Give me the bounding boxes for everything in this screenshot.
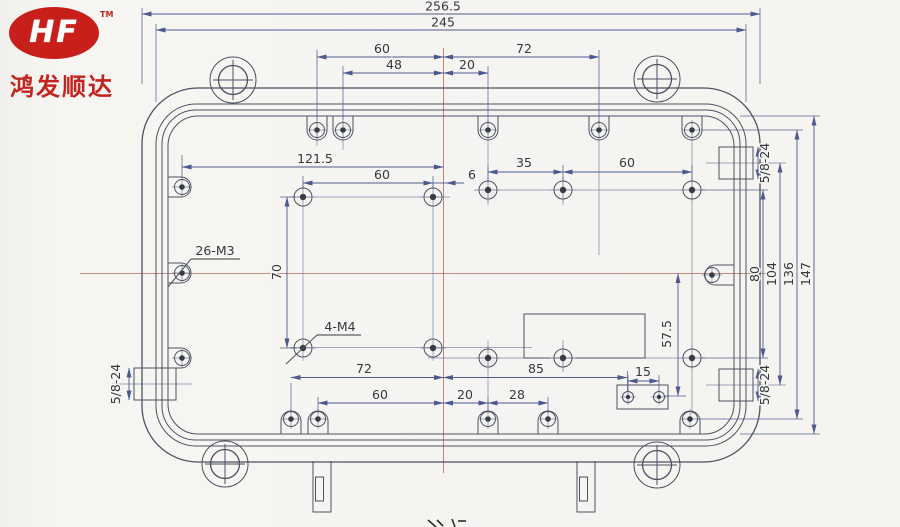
extension-lines	[142, 8, 820, 434]
label-4-m4: 4-M4	[324, 319, 355, 334]
dim-mid-6: 6	[468, 167, 476, 182]
dim-bottom-28: 28	[509, 387, 525, 402]
dim-right-80: 80	[747, 266, 762, 282]
label-26-m3: 26-M3	[195, 243, 234, 258]
boss-screw	[679, 345, 705, 371]
dim-top-right-72: 72	[516, 41, 532, 56]
dim-mid-57-5: 57.5	[659, 320, 674, 348]
label-thread-top-right: 5/8-24	[757, 143, 772, 184]
corner-mount-hole-bottom-left	[205, 444, 245, 484]
dim-left-height-70: 70	[269, 264, 284, 280]
tab-screw	[172, 348, 192, 368]
dim-bottom-72: 72	[356, 361, 372, 376]
label-thread-bottom-right: 5/8-24	[757, 365, 772, 406]
dim-right-104: 104	[764, 262, 779, 286]
callout-leaders	[168, 259, 361, 364]
dim-top-left-60: 60	[374, 41, 390, 56]
dim-mid-60: 60	[374, 167, 390, 182]
corner-mount-hole-top-left	[213, 60, 253, 100]
enclosure-outline	[142, 56, 760, 512]
dim-right-136: 136	[781, 262, 796, 286]
dim-upper-right-60: 60	[619, 155, 635, 170]
foot-notch-right	[580, 477, 588, 501]
terminal-screw	[651, 389, 667, 405]
dim-bottom-20: 20	[457, 387, 473, 402]
corner-mount-hole-top-right	[637, 59, 677, 99]
dim-top-48: 48	[386, 57, 402, 72]
dim-overall-width: 256.5	[425, 0, 461, 14]
tab-screw	[172, 177, 192, 197]
dim-inner-width: 245	[431, 15, 455, 30]
dim-bottom-60: 60	[372, 387, 388, 402]
dimension-lines	[129, 14, 814, 434]
boss-screw	[420, 335, 446, 361]
tab-screw	[172, 263, 192, 283]
label-thread-bottom-left: 5/8-24	[108, 364, 123, 405]
enclosure-drawing: 256.5 245 60 72 48 20 121.5 60 6 35 60 7…	[0, 0, 900, 527]
boss-screw	[475, 345, 501, 371]
wall-screw-tabs	[168, 116, 734, 434]
tab-screw	[680, 409, 700, 429]
partial-caption-glyphs	[428, 519, 466, 527]
corner-mount-hole-bottom-right	[637, 445, 677, 485]
dim-bottom-85: 85	[528, 361, 544, 376]
foot-notch-left	[316, 477, 324, 501]
scanned-drawing-page: HF TM 鸿发顺达	[0, 0, 900, 527]
tab-screw	[702, 265, 722, 285]
dim-right-147: 147	[798, 262, 813, 286]
dimension-texts: 256.5 245 60 72 48 20 121.5 60 6 35 60 7…	[108, 0, 813, 405]
dim-mid-121-5: 121.5	[297, 151, 333, 166]
dim-bottom-15: 15	[635, 364, 651, 379]
boss-screw	[550, 345, 576, 371]
dim-upper-right-35: 35	[516, 155, 532, 170]
terminal-screw	[620, 389, 636, 405]
interior-slot-opening	[524, 314, 645, 358]
dim-top-20: 20	[459, 57, 475, 72]
